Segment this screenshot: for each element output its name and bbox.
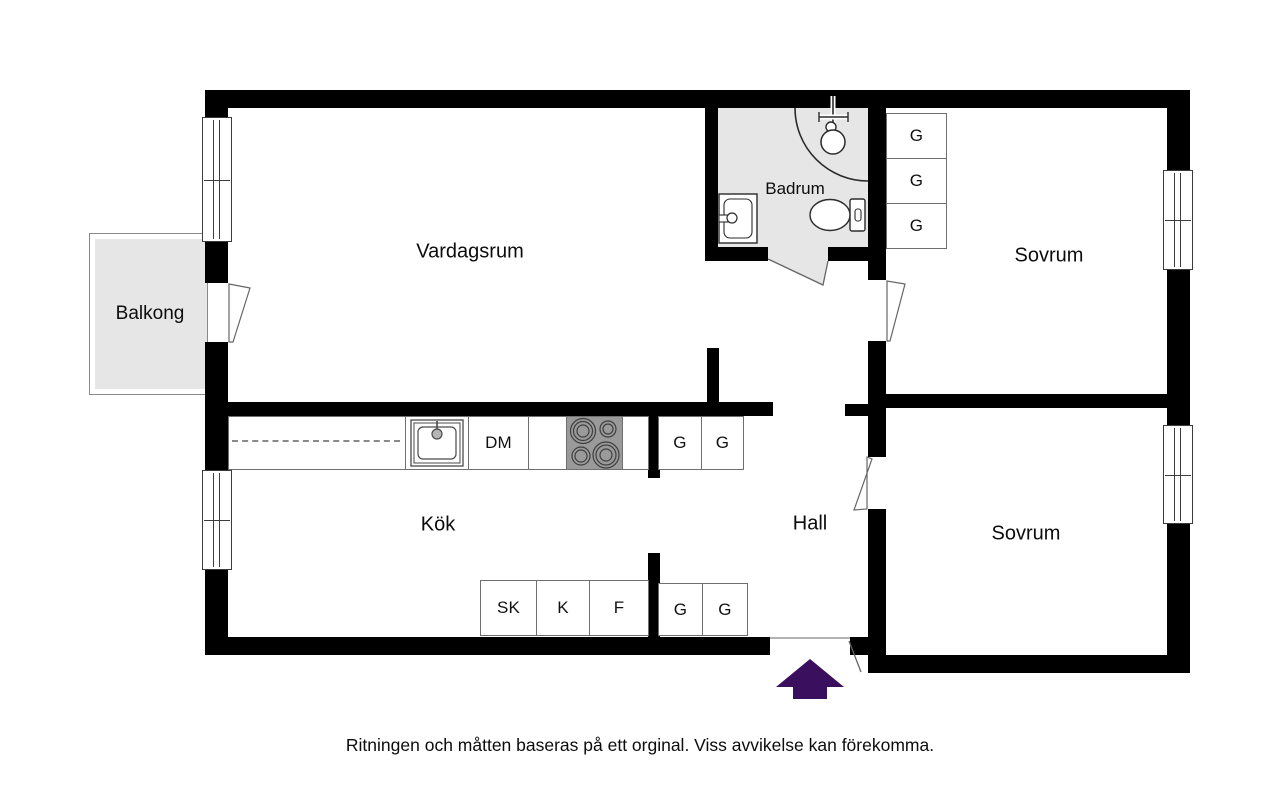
wall-top	[205, 90, 1190, 108]
wardrobe-label: G	[910, 216, 923, 236]
bedroom-top-window	[1163, 170, 1193, 270]
wall-bathroom-left	[705, 108, 718, 258]
window-frame-line	[204, 180, 230, 181]
window-frame-line	[1165, 220, 1191, 221]
balcony-door-leaf	[229, 284, 250, 342]
wall-bottom-bedroom	[868, 655, 1190, 673]
wall-right-b	[1167, 268, 1190, 425]
window-frame-line	[1165, 475, 1191, 476]
hall-closet-upper-1: G	[658, 416, 702, 470]
wall-stub-livingroom	[707, 348, 719, 404]
bathroom-door-leaf	[768, 259, 828, 285]
room-label-sovrum-top: Sovrum	[1015, 245, 1084, 268]
bathroom-floor	[718, 108, 868, 247]
hall-closet-upper-2: G	[701, 416, 744, 470]
cabinet-label: K	[557, 598, 569, 618]
disclaimer-text: Ritningen och måtten baseras på ett orgi…	[0, 735, 1280, 756]
wall-hall-bedroom-a	[868, 108, 886, 280]
stove	[566, 416, 623, 470]
dishwasher-label: DM	[485, 433, 512, 453]
wall-entrance-piece	[850, 637, 868, 655]
bedroom-wardrobe-1: G	[886, 113, 947, 159]
wall-right-c	[1167, 522, 1190, 673]
kitchen-cabinet-blank-2	[622, 416, 649, 470]
wall-mid-horizontal	[205, 402, 773, 416]
kitchen-cabinet-k: K	[536, 580, 590, 636]
closet-label: G	[718, 600, 731, 620]
window-frame-line	[204, 520, 230, 521]
kitchen-cabinet-sk: SK	[480, 580, 537, 636]
closet-label: G	[716, 433, 729, 453]
room-label-kok: Kök	[421, 514, 455, 537]
counter-dashed-edge	[232, 440, 400, 442]
wall-left-b	[205, 240, 228, 283]
bedroom-wardrobe-2: G	[886, 158, 947, 204]
entrance-arrow-icon	[776, 659, 844, 699]
cabinet-label: SK	[497, 598, 520, 618]
wardrobe-label: G	[910, 171, 923, 191]
bedroom-bottom-door-leaf	[854, 457, 872, 510]
wall-bedroom-divider	[886, 394, 1167, 408]
room-label-hall: Hall	[793, 513, 827, 536]
kitchen-window	[202, 470, 232, 570]
room-label-vardagsrum: Vardagsrum	[416, 241, 523, 264]
wall-mid-stub-right	[845, 404, 868, 416]
kitchen-counter-segment	[228, 416, 406, 470]
room-label-balkong: Balkong	[116, 303, 185, 325]
kitchen-sink-cabinet	[405, 416, 469, 470]
livingroom-window	[202, 117, 232, 242]
room-label-sovrum-bottom: Sovrum	[992, 523, 1061, 546]
kitchen-cabinet-blank-1	[528, 416, 567, 470]
wardrobe-label: G	[910, 126, 923, 146]
closet-label: G	[674, 600, 687, 620]
hall-closet-lower-2: G	[702, 583, 748, 636]
floorplan-canvas: DM G G SK K F G G G G G Vardagsrum Badru…	[0, 0, 1280, 806]
dishwasher-cabinet: DM	[468, 416, 529, 470]
kitchen-cabinet-f: F	[589, 580, 649, 636]
bathroom-door-swing-floor	[768, 247, 828, 285]
wall-bottom-left	[205, 637, 770, 655]
wall-bathroom-bottom-left	[705, 247, 768, 261]
wall-hall-bedroom-c	[868, 509, 886, 673]
wall-left-a	[205, 90, 228, 117]
bedroom-wardrobe-3: G	[886, 203, 947, 249]
wall-hall-bedroom-b	[868, 341, 886, 457]
closet-label: G	[673, 433, 686, 453]
wall-right-a	[1167, 90, 1190, 170]
cabinet-label: F	[614, 598, 625, 618]
hall-closet-lower-1: G	[658, 583, 703, 636]
wall-bathroom-bottom-right	[828, 247, 868, 261]
bedroom-bottom-window	[1163, 425, 1193, 524]
bedroom-top-door-leaf	[887, 281, 905, 341]
room-label-badrum: Badrum	[765, 179, 825, 199]
